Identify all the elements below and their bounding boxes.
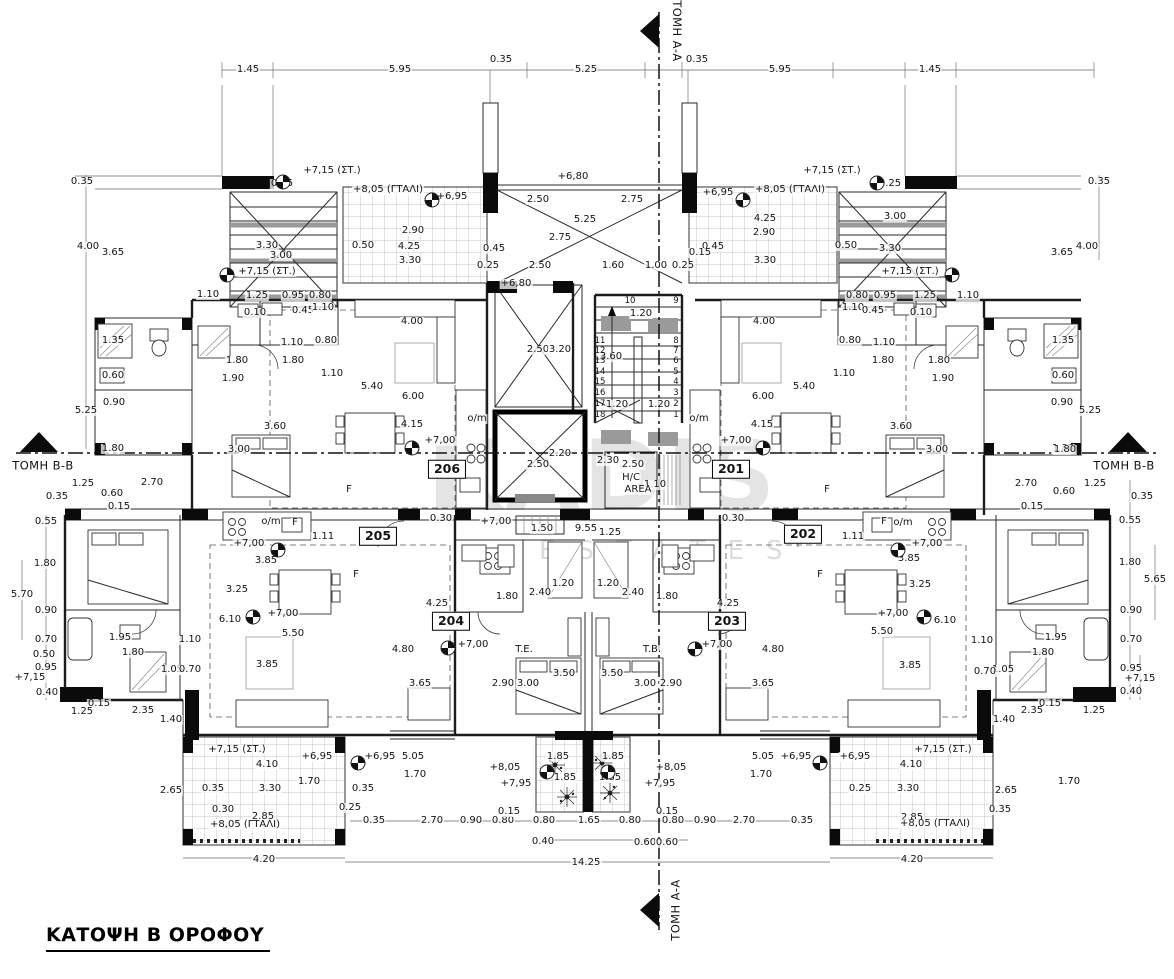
- roof-stair-right: [839, 192, 946, 307]
- veranda-bottom-left: [183, 737, 345, 845]
- planter-left: [536, 737, 583, 812]
- hc-area: [605, 452, 657, 508]
- staircase: [595, 306, 682, 446]
- section-a-a-triangle-bottom: [640, 893, 659, 927]
- entry-court: [483, 103, 697, 283]
- floor-plan-canvas: KADIS ESTATES: [0, 0, 1174, 979]
- section-a-a-triangle-top: [640, 14, 659, 48]
- section-b-b-triangle-left: [20, 432, 58, 452]
- beds: [88, 435, 1088, 714]
- veranda-top-left: [343, 187, 487, 283]
- veranda-top-right: [689, 187, 837, 283]
- veranda-bottom-right: [830, 737, 993, 845]
- floor-plan-linework: [0, 0, 1174, 979]
- planter-right: [593, 737, 630, 812]
- elevator-shaft-upper: [495, 285, 582, 407]
- roof-stair-left: [230, 192, 337, 307]
- drawing-title: ΚΑΤΟΨΗ Β ΟΡΟΦΟΥ: [46, 924, 270, 952]
- elevator-shaft-lower: [495, 412, 585, 502]
- section-b-b-triangle-right: [1109, 432, 1147, 452]
- bathroom-fixtures: [68, 303, 1108, 692]
